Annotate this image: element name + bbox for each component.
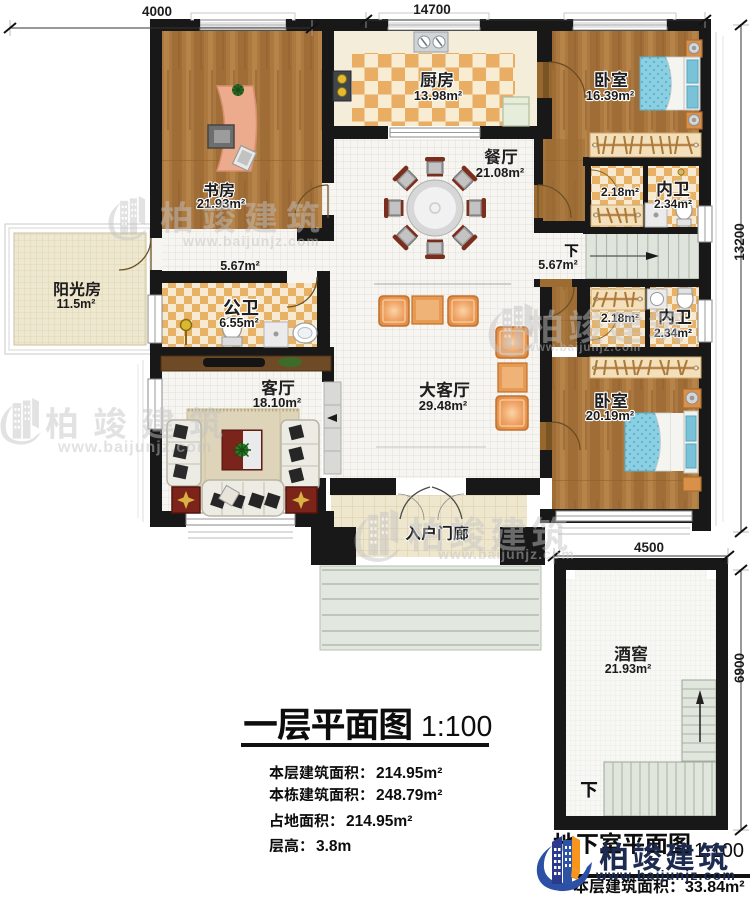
svg-text:2.18m²: 2.18m² xyxy=(601,185,639,199)
svg-text:4000: 4000 xyxy=(142,4,172,19)
svg-text:3.8m: 3.8m xyxy=(316,838,351,855)
svg-text:5.67m²: 5.67m² xyxy=(538,258,578,272)
svg-text:21.08m²: 21.08m² xyxy=(476,165,525,180)
svg-text:www.baijunjz.com: www.baijunjz.com xyxy=(437,546,575,562)
svg-text:20.19m²: 20.19m² xyxy=(586,408,635,423)
svg-text:14700: 14700 xyxy=(413,2,451,17)
svg-text:1:100: 1:100 xyxy=(421,711,492,743)
svg-text:21.93m²: 21.93m² xyxy=(605,662,652,676)
svg-text:2.34m²: 2.34m² xyxy=(654,197,692,211)
svg-text:18.10m²: 18.10m² xyxy=(253,395,302,410)
svg-text:214.95m²: 214.95m² xyxy=(376,765,442,782)
svg-text:www.baijunjz.com: www.baijunjz.com xyxy=(57,439,212,456)
svg-text:www.baijunjz.com: www.baijunjz.com xyxy=(595,867,736,883)
svg-text:11.5m²: 11.5m² xyxy=(57,297,96,311)
svg-text:www.baijunjz.com: www.baijunjz.com xyxy=(182,233,320,249)
svg-text:13.98m²: 13.98m² xyxy=(414,88,463,103)
svg-text:5.67m²: 5.67m² xyxy=(220,259,260,273)
svg-text:6.55m²: 6.55m² xyxy=(219,316,259,330)
svg-text:248.79m²: 248.79m² xyxy=(376,787,442,804)
svg-text:www.baijunjz.com: www.baijunjz.com xyxy=(525,342,641,354)
svg-text:214.95m²: 214.95m² xyxy=(346,813,412,830)
svg-text:13200: 13200 xyxy=(732,223,747,261)
svg-text:16.39m²: 16.39m² xyxy=(586,88,635,103)
svg-text:29.48m²: 29.48m² xyxy=(419,398,468,413)
svg-text:4500: 4500 xyxy=(634,540,664,555)
svg-text:6900: 6900 xyxy=(732,653,747,683)
